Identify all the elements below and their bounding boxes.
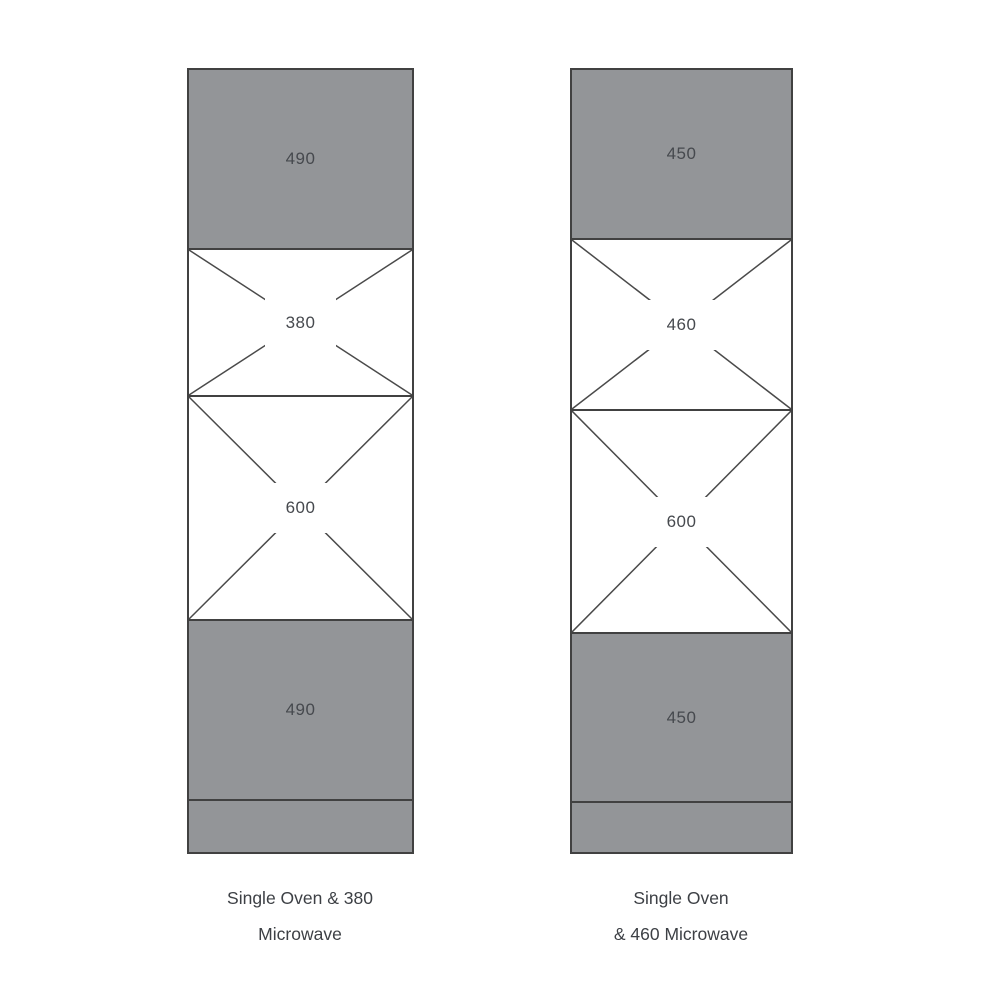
caption-line-2: & 460 Microwave: [521, 916, 841, 952]
microwave-aperture-left: 380: [189, 250, 412, 397]
caption-left: Single Oven & 380 Microwave: [140, 880, 460, 952]
filler-panel-bottom-left: 490: [189, 621, 412, 801]
caption-right: Single Oven & 460 Microwave: [521, 880, 841, 952]
dimension-label: 490: [286, 149, 316, 169]
tower-cabinet-left: 490 380 600 490: [187, 68, 414, 854]
caption-line-1: Single Oven: [521, 880, 841, 916]
microwave-aperture-right: 460: [572, 240, 791, 411]
oven-aperture-left: 600: [189, 397, 412, 621]
caption-line-1: Single Oven & 380: [140, 880, 460, 916]
tower-cabinet-right: 450 460 600 450: [570, 68, 793, 854]
dimension-label: 490: [286, 700, 316, 720]
oven-aperture-right: 600: [572, 411, 791, 634]
dimension-label: 380: [265, 298, 337, 348]
filler-panel-top-right: 450: [572, 70, 791, 240]
filler-panel-top-left: 490: [189, 70, 412, 250]
dimension-label: 450: [667, 708, 697, 728]
dimension-label: 460: [646, 300, 718, 350]
dimension-label: 600: [646, 497, 718, 547]
plinth-left: [189, 801, 412, 852]
cabinet-diagram-canvas: 490 380 600 490 Single Oven & 380 Microw…: [0, 0, 1000, 1000]
plinth-right: [572, 803, 791, 852]
filler-panel-bottom-right: 450: [572, 634, 791, 803]
dimension-label: 450: [667, 144, 697, 164]
caption-line-2: Microwave: [140, 916, 460, 952]
dimension-label: 600: [265, 483, 337, 533]
